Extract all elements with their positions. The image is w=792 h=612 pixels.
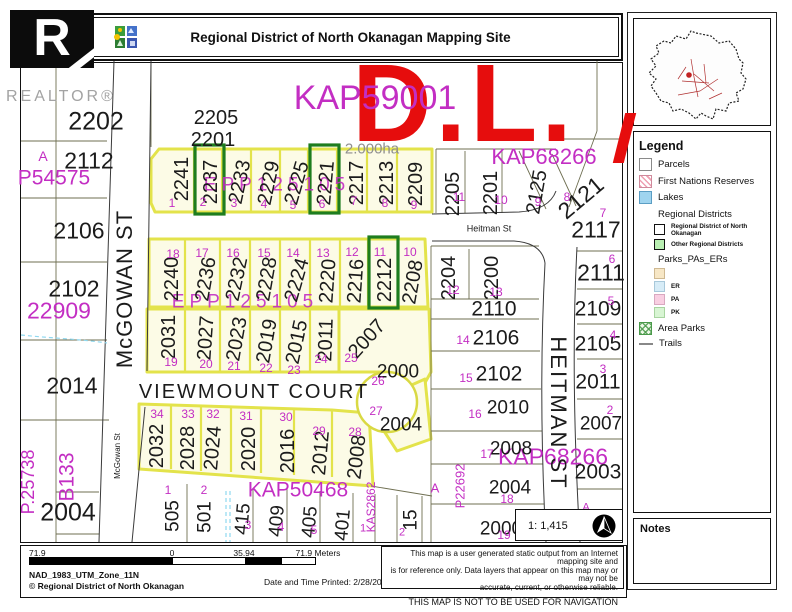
inset-map-graphic [634,19,769,124]
realtor-logo: R [10,10,94,68]
parcel-number: 2205 [194,108,239,128]
lot-number: 1 [165,484,172,496]
lot-number: 32 [206,408,219,420]
parcel-number: 2024 [201,425,225,471]
lot-number: 5 [608,295,615,307]
lot-number: 13 [316,247,329,259]
parcel-number: 501 [196,501,215,533]
parcel-number: 2004 [40,501,96,526]
legend-title: Legend [639,139,765,153]
map-canvas: D.L.KAP59001KAP68266KAP68266KAP50468P545… [20,62,623,543]
legend-item: Other Regional Districts [654,239,765,250]
parcel-number: 2016 [278,429,298,474]
north-arrow-icon [591,513,617,539]
lot-number: 1 [360,524,366,535]
lot-number: 12 [345,246,358,258]
projection-label: NAD_1983_UTM_Zone_11N [29,570,139,580]
legend-item-label: Regional District of North Okanagan [671,223,765,237]
parcel-number: 2216 [344,258,367,304]
legend-swatch-fnr [639,175,652,188]
legend-item-label: Regional Districts [658,209,732,220]
lot-number: 2 [200,196,207,208]
scalebar-black-segment [245,558,282,564]
legend-item: Area Parks [639,322,765,335]
lot-number: 9 [535,196,542,208]
scalebar-outline-segment [172,557,316,565]
realtor-watermark-text: REALTOR® [6,88,116,106]
lot-number: 14 [286,247,299,259]
street-label-mcgowan-st-small: McGowan St [114,433,122,479]
lot-number: 34 [150,408,163,420]
parcel-number: 2117 [571,219,620,242]
parcel-number: 2008 [490,440,532,459]
parcel-number: 2102 [476,364,523,385]
parcel-number: 2220 [316,258,339,304]
lot-number: 27 [369,405,382,417]
plan-number: B133 [57,452,78,501]
lot-number: 5 [290,199,297,211]
legend-item: ER [654,281,765,292]
legend-item-label: Lakes [658,192,683,203]
plan-number: P.25738 [19,450,37,515]
lot-number: 15 [459,372,472,384]
legend-item-label: Area Parks [658,323,705,334]
lot-number: 3 [231,197,238,209]
legend-item: Regional Districts [639,208,765,221]
lot-letter: A [431,482,440,495]
parcel-number: 2028 [178,426,198,471]
parcel-number: 2004 [380,416,422,435]
lot-number: 3 [245,519,252,531]
legend-swatch-tan [654,268,665,279]
lot-number: 17 [480,448,493,460]
lot-number: 4 [610,329,617,341]
legend-item: Lakes [639,191,765,204]
lot-number: 4 [261,198,268,210]
legend-item: Regional District of North Okanagan [654,223,765,237]
lot-number: 24 [314,353,327,365]
legend-item [654,268,765,279]
parcel-number: 2110 [471,299,516,320]
scalebar-solid-segment [29,557,172,565]
disclaimer-line: This map is a user generated static outp… [387,550,618,567]
legend-swatch-lake [639,191,652,204]
parcel-number: 401 [332,508,354,541]
disclaimer-box: This map is a user generated static outp… [381,546,624,589]
lot-number: 7 [351,195,358,207]
parcel-number: 2027 [194,315,217,361]
legend-swatch-rdno [654,224,665,235]
legend-panel: Legend ParcelsFirst Nations ReservesLake… [633,131,771,513]
lot-number: 20 [199,358,212,370]
legend-swatch-pk [654,307,665,318]
lot-number: 30 [279,411,292,423]
parcel-number: 2229 [255,159,284,207]
parcel-number: 2106 [53,220,104,243]
legend-swatch-parcel [639,158,652,171]
legend-swatch-ordd [654,239,665,250]
lot-number: 3 [600,363,607,375]
plan-number: 22909 [27,300,91,323]
area-label: 2.000ha [345,142,399,157]
lot-number: 26 [371,375,384,387]
header-bar: Regional District of North Okanagan Mapp… [78,13,623,61]
disclaimer-line: is for reference only. Data layers that … [387,567,618,584]
parcel-number: 2031 [159,315,179,360]
legend-item-label: Trails [659,338,682,349]
legend-item: Parks_PAs_ERs [639,253,765,266]
lot-number: 18 [166,248,179,260]
lot-number: 6 [609,253,616,265]
parcel-number: 2010 [487,399,529,418]
parcel-number: 2014 [46,375,97,398]
legend-item-label: Other Regional Districts [671,241,743,248]
parcel-number: 2112 [64,150,113,173]
legend-item-label: PA [671,296,679,303]
lot-number: 16 [226,247,239,259]
lot-number: 10 [494,194,507,206]
parcel-number: 2023 [223,315,250,362]
parcel-number: 2240 [162,257,182,302]
legend-items: ParcelsFirst Nations ReservesLakesRegion… [639,158,765,349]
parcel-number: 2007 [580,415,622,434]
lot-number: 13 [489,286,502,298]
lot-number: 2 [399,528,405,539]
street-label-viewmount-court: VIEWMOUNT COURT [139,382,369,402]
parcel-number: 2202 [68,110,124,135]
legend-item: Trails [639,338,765,349]
scale-ratio-box: 1: 1,415 [515,509,623,541]
lot-number: 5 [311,524,318,536]
lot-number: 10 [403,246,416,258]
lot-number: 15 [257,247,270,259]
legend-item-label: PK [671,309,680,316]
legend-item-label: ER [671,283,680,290]
lot-number: 23 [287,364,300,376]
lot-number: 14 [456,334,469,346]
street-label-heitman-st-small: Heitman St [467,225,512,234]
copyright-label: © Regional District of North Okanagan [29,581,184,591]
lot-number: 2 [201,484,208,496]
legend-item: PA [654,294,765,305]
lot-number: 8 [382,197,389,209]
parcel-number: 2241 [172,157,192,202]
plan-number: KAP59001 [294,81,457,115]
lot-number: 8 [564,191,571,203]
rdno-logo-icon [114,25,138,49]
notes-title: Notes [640,523,764,535]
parcel-number: 2208 [399,258,426,305]
lot-number: 1 [169,197,176,209]
disclaimer-line: accurate, current, or otherwise reliable… [387,584,618,592]
lot-number: 11 [374,246,386,258]
parcel-number: 2008 [344,434,369,481]
lot-number: 29 [312,425,325,437]
lot-number: 7 [600,207,607,219]
lot-number: 28 [348,426,361,438]
lot-number: 2 [607,404,614,416]
parcel-number: 2106 [473,328,520,349]
lot-number: 6 [319,198,326,210]
parcel-number: 2221 [314,160,338,206]
lot-number: 16 [468,408,481,420]
parcel-number: 505 [164,500,183,532]
lot-number: 12 [446,284,459,296]
parcel-number: 2020 [239,427,259,472]
header-inner-border: Regional District of North Okanagan Mapp… [82,17,619,57]
legend-item-label: Parcels [658,159,690,170]
plan-number: KAP68266 [491,146,596,168]
lot-number: 17 [195,247,208,259]
lot-number: 33 [181,408,194,420]
lot-number: 11 [453,191,465,203]
navigation-warning: THIS MAP IS NOT TO BE USED FOR NAVIGATIO… [387,597,618,607]
plan-number: KAS2862 [365,482,377,533]
plan-number: KAP50468 [248,480,348,501]
legend-swatch-areaparks [639,322,652,335]
lot-number: 21 [227,360,240,372]
parcel-number: 2019 [253,317,280,364]
lot-number: 18 [500,493,513,505]
legend-swatch-pa [654,294,665,305]
page-title: Regional District of North Okanagan Mapp… [190,30,510,45]
lot-number: 9 [411,199,418,211]
notes-panel: Notes [633,518,771,584]
map-label-layer: D.L.KAP59001KAP68266KAP68266KAP50468P545… [21,63,622,542]
legend-item-label: Parks_PAs_ERs [658,254,728,265]
parcel-number: 2111 [577,262,625,285]
overview-inset-map [633,18,771,126]
lot-number: 25 [344,352,357,364]
lot-letter: A [38,149,47,163]
realtor-logo-letter: R [33,12,71,64]
parcel-number: 2003 [575,462,622,483]
parcel-number: 2102 [48,278,99,301]
parcel-number: 2212 [375,258,395,303]
lot-number: 4 [278,521,285,533]
parcel-number: 2011 [575,372,620,393]
inset-location-marker [686,72,692,78]
lot-number: 19 [164,356,177,368]
legend-swatch-trail [639,343,653,345]
lot-number: 31 [239,410,252,422]
parcel-number: 2201 [191,130,236,150]
plan-number: P22692 [454,464,467,509]
parcel-number: 2032 [147,424,167,469]
legend-item: PK [654,307,765,318]
parcel-number: 2015 [283,318,312,366]
legend-item-label: First Nations Reserves [658,176,754,187]
street-label-mcgowan-st: McGOWAN ST [114,210,136,368]
lot-number: 22 [259,362,272,374]
legend-item: First Nations Reserves [639,175,765,188]
parcel-number: 2225 [281,159,312,207]
legend-item: Parcels [639,158,765,171]
legend-swatch-er [654,281,665,292]
scale-ratio: 1: 1,415 [528,520,568,532]
realtor-logo-slash [68,47,94,68]
lot-number: 19 [497,529,510,541]
street-label-heitman-st: HEITMAN ST [547,336,569,489]
